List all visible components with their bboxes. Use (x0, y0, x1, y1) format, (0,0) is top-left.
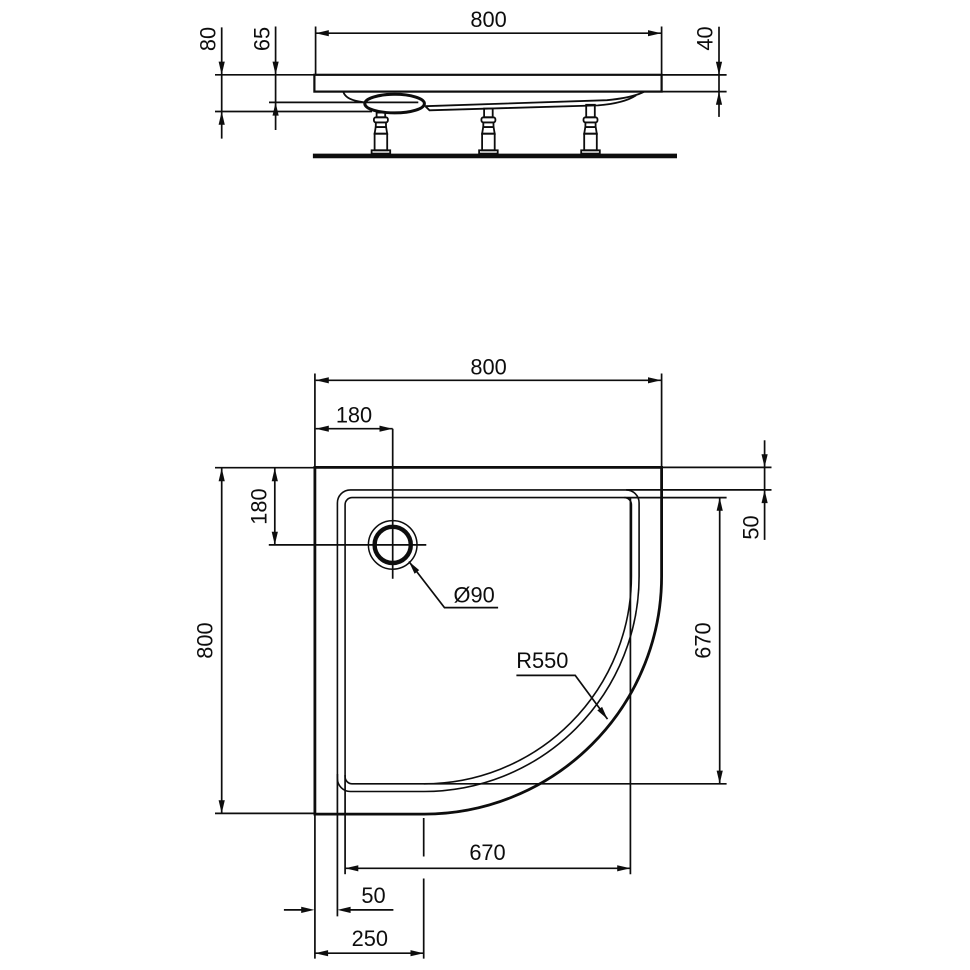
svg-text:Ø90: Ø90 (454, 583, 495, 608)
svg-text:800: 800 (470, 7, 506, 32)
svg-text:670: 670 (691, 622, 716, 658)
svg-text:180: 180 (336, 402, 372, 427)
svg-text:50: 50 (739, 515, 764, 539)
svg-text:800: 800 (193, 622, 218, 658)
svg-text:R550: R550 (516, 648, 568, 673)
svg-text:65: 65 (250, 27, 275, 51)
svg-text:250: 250 (352, 926, 388, 951)
svg-text:50: 50 (361, 883, 385, 908)
svg-text:80: 80 (196, 27, 221, 51)
svg-text:180: 180 (247, 488, 272, 524)
svg-text:800: 800 (470, 354, 506, 379)
svg-text:40: 40 (693, 26, 718, 50)
svg-text:670: 670 (469, 840, 505, 865)
